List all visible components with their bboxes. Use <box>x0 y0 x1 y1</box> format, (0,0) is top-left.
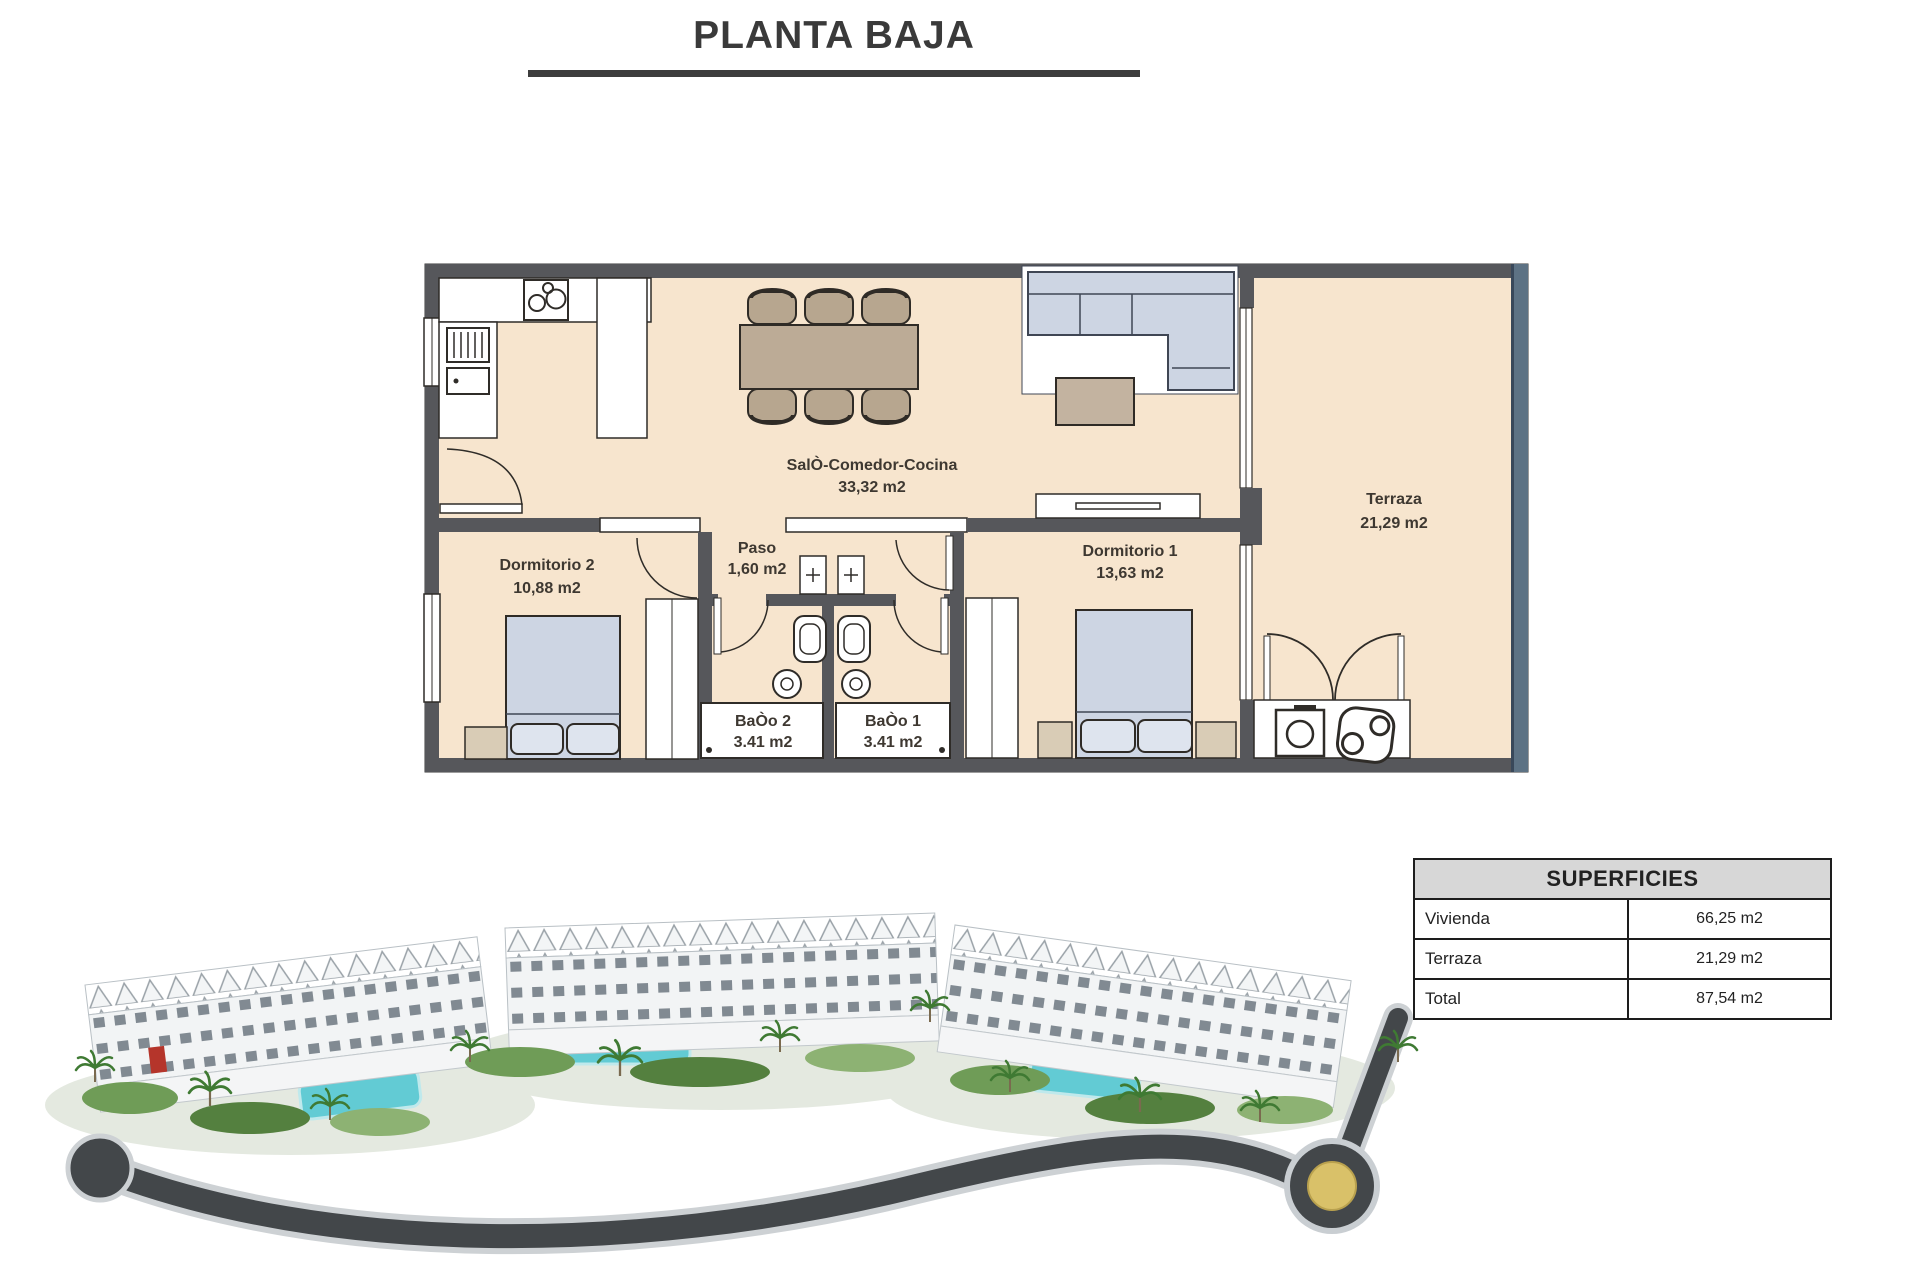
svg-text:10,88 m2: 10,88 m2 <box>513 580 581 597</box>
aerial-render <box>45 913 1417 1236</box>
svg-text:Terraza: Terraza <box>1366 491 1422 508</box>
sink-1-icon <box>842 670 870 698</box>
superficies-table: SUPERFICIES Vivienda 66,25 m2 Terraza 21… <box>1413 858 1832 1020</box>
stove-icon <box>524 280 568 320</box>
row-value: 87,54 m2 <box>1627 980 1830 1018</box>
wall-top <box>425 264 1528 278</box>
floor-plan: SalÒ-Comedor-Cocina 33,32 m2 Terraza 21,… <box>424 264 1528 772</box>
row-label: Vivienda <box>1415 900 1627 938</box>
washing-machine-icon <box>1276 705 1324 756</box>
roundabout <box>1284 1138 1380 1234</box>
nightstand <box>1038 722 1072 758</box>
tv-sideboard <box>1036 494 1200 518</box>
terrace-sliding-door <box>1240 308 1252 488</box>
building-block-middle <box>505 913 939 1056</box>
svg-text:BaÒo 1: BaÒo 1 <box>865 711 921 730</box>
vent-icon <box>447 328 489 362</box>
svg-text:SalÒ-Comedor-Cocina: SalÒ-Comedor-Cocina <box>787 455 958 474</box>
row-value: 66,25 m2 <box>1627 900 1830 938</box>
row-label: Total <box>1415 980 1627 1018</box>
water-heater-icon <box>1336 706 1396 764</box>
plan-canvas: SalÒ-Comedor-Cocina 33,32 m2 Terraza 21,… <box>0 0 1920 1280</box>
svg-text:Dormitorio 2: Dormitorio 2 <box>499 557 594 574</box>
toilet-2-icon <box>794 616 826 662</box>
utility-closet <box>1254 700 1410 764</box>
svg-text:13,63 m2: 13,63 m2 <box>1096 565 1164 582</box>
svg-text:33,32 m2: 33,32 m2 <box>838 479 906 496</box>
red-accent <box>148 1046 167 1074</box>
svg-text:1,60 m2: 1,60 m2 <box>728 561 787 578</box>
table-row: Vivienda 66,25 m2 <box>1415 898 1830 938</box>
row-value: 21,29 m2 <box>1627 940 1830 978</box>
bedroom1-glass <box>1240 545 1252 700</box>
svg-text:Dormitorio 1: Dormitorio 1 <box>1082 543 1177 560</box>
toilet-1-icon <box>838 616 870 662</box>
culdesac <box>68 1136 132 1200</box>
svg-text:3.41 m2: 3.41 m2 <box>734 734 793 751</box>
brochure-sheet: PLANTA BAJA <box>0 0 1920 1280</box>
terrace-wall <box>1514 264 1528 772</box>
appliance-icon <box>447 368 489 394</box>
svg-text:BaÒo 2: BaÒo 2 <box>735 711 791 730</box>
superficies-header: SUPERFICIES <box>1415 860 1830 898</box>
bedroom2-window <box>424 594 440 702</box>
kitchen-window <box>424 318 440 386</box>
svg-text:3.41 m2: 3.41 m2 <box>864 734 923 751</box>
table-row: Total 87,54 m2 <box>1415 978 1830 1018</box>
road <box>100 1147 1290 1237</box>
sink-2-icon <box>773 670 801 698</box>
nightstand <box>465 727 507 759</box>
dining-table <box>740 290 918 423</box>
nightstand <box>1196 722 1236 758</box>
coffee-table <box>1056 378 1134 425</box>
table-row: Terraza 21,29 m2 <box>1415 938 1830 978</box>
svg-text:21,29 m2: 21,29 m2 <box>1360 515 1428 532</box>
row-label: Terraza <box>1415 940 1627 978</box>
sofa <box>1022 266 1238 394</box>
svg-text:Paso: Paso <box>738 540 776 557</box>
